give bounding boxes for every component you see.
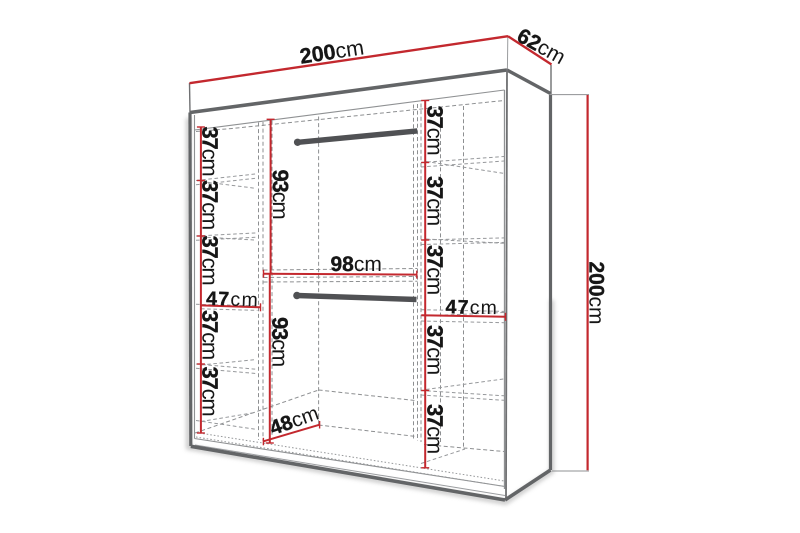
svg-text:37cm: 37cm <box>198 236 223 285</box>
svg-text:37cm: 37cm <box>198 180 223 229</box>
svg-text:37cm: 37cm <box>423 176 448 225</box>
svg-text:93cm: 93cm <box>267 317 292 366</box>
svg-text:37cm: 37cm <box>198 367 223 416</box>
svg-text:98cm: 98cm <box>331 253 382 276</box>
svg-text:37cm: 37cm <box>423 404 448 453</box>
svg-text:37cm: 37cm <box>423 325 448 374</box>
svg-text:37cm: 37cm <box>198 127 223 176</box>
svg-text:37cm: 37cm <box>198 310 223 359</box>
svg-text:37cm: 37cm <box>423 245 448 294</box>
svg-text:37cm: 37cm <box>423 106 448 155</box>
svg-text:47cm: 47cm <box>445 296 498 319</box>
svg-text:93cm: 93cm <box>268 170 293 219</box>
svg-text:47cm: 47cm <box>206 288 260 312</box>
svg-text:200cm: 200cm <box>585 262 608 325</box>
